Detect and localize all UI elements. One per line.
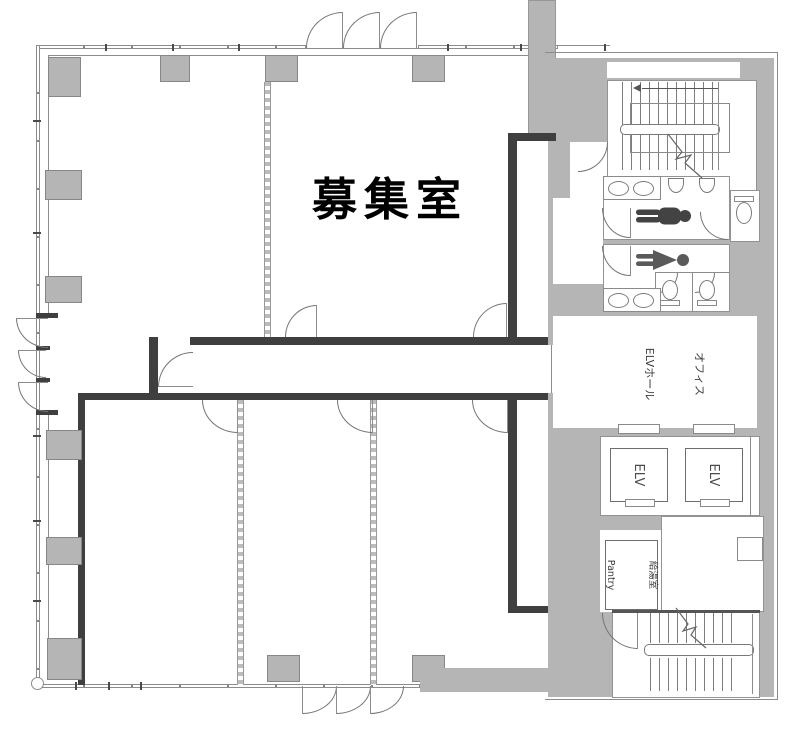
- elevator-label: ELV: [631, 455, 647, 495]
- stair-break-line: [672, 604, 712, 652]
- toilet: [736, 202, 752, 224]
- door-arc: [16, 318, 48, 348]
- core-outline: [545, 699, 778, 700]
- column: [48, 57, 81, 97]
- tick-mark: [172, 44, 174, 51]
- toilet: [699, 280, 715, 300]
- tick-mark: [75, 682, 77, 690]
- main-room-label: 募集室: [290, 163, 490, 227]
- door-leaf: [302, 686, 303, 714]
- elv-hall-label: オフィス ELVホール: [657, 326, 691, 422]
- tick-mark: [140, 682, 142, 690]
- duct-box: [737, 537, 763, 561]
- core-outline: [777, 52, 778, 700]
- elevator-door-sill: [700, 499, 730, 507]
- machine-room-line: [750, 436, 751, 516]
- door-leaf: [507, 400, 508, 433]
- elevator-door-sill: [625, 499, 655, 507]
- toilet-vestibule: [553, 198, 603, 284]
- sink: [608, 293, 629, 308]
- lease-boundary-line: [551, 345, 552, 393]
- sink: [608, 181, 629, 196]
- door-arc: [202, 400, 238, 433]
- partition-dashed: [264, 82, 271, 337]
- column: [267, 655, 300, 682]
- door-arc: [302, 686, 337, 714]
- tenant-wall: [190, 337, 548, 345]
- toilet-tank: [697, 300, 717, 306]
- toilet-tank: [660, 300, 680, 306]
- sink: [633, 293, 654, 308]
- door-leaf: [18, 382, 48, 383]
- elv-hall-label-line2: ELVホール: [641, 348, 658, 400]
- tick-mark: [604, 44, 606, 51]
- toilet: [662, 280, 678, 300]
- door-leaf: [316, 305, 317, 337]
- tick-mark: [105, 44, 107, 51]
- door-leaf: [630, 208, 631, 238]
- door-arc: [370, 686, 404, 714]
- column: [265, 55, 298, 82]
- door-arc: [18, 350, 46, 378]
- door-arc: [18, 382, 48, 412]
- door-arc: [158, 352, 193, 387]
- tick-mark: [108, 682, 110, 690]
- tick-mark: [33, 520, 41, 522]
- door-arc: [380, 12, 417, 48]
- door-leaf: [158, 386, 193, 387]
- gray-wall-band: [420, 668, 548, 692]
- pantry-label-line1: 給湯室: [645, 560, 659, 590]
- outer-wall-top: [36, 45, 306, 49]
- stair-break-line: [664, 130, 708, 182]
- stair-top-landing: [607, 62, 740, 78]
- female-figure-icon: [634, 247, 690, 273]
- corner-circle: [31, 677, 44, 690]
- stair-arrow-head-icon: [633, 84, 641, 92]
- door-leaf: [637, 613, 638, 649]
- floor-plan: ELV ELV オフィス ELVホール 給湯室 Pantry: [0, 0, 787, 737]
- gray-wall-band: [603, 240, 730, 244]
- tick-mark: [520, 44, 522, 51]
- sink: [633, 181, 654, 196]
- column: [160, 55, 190, 82]
- stair-treads: [650, 658, 738, 691]
- tick-mark: [447, 44, 449, 51]
- door-leaf: [336, 686, 337, 714]
- column: [46, 537, 82, 565]
- door-arc: [472, 400, 508, 433]
- tick-mark: [33, 600, 41, 602]
- stair-edge-line: [718, 82, 719, 170]
- door-arc: [336, 686, 371, 714]
- door-leaf: [237, 400, 238, 433]
- column: [412, 55, 445, 82]
- main-room-label-text: 募集室: [312, 163, 468, 228]
- stall-divider: [692, 272, 693, 312]
- door-arc: [343, 12, 380, 48]
- elevator-door-tab: [693, 424, 735, 434]
- partition-dashed: [237, 400, 244, 685]
- door-leaf: [370, 686, 371, 714]
- door-leaf: [16, 318, 48, 319]
- corridor-mouth: [548, 345, 557, 393]
- door-leaf: [630, 246, 631, 276]
- elv-hall-label-line1: オフィス: [691, 348, 708, 400]
- male-figure-icon: [634, 203, 692, 229]
- door-leaf: [372, 400, 373, 433]
- pantry-label: 給湯室 Pantry: [619, 547, 643, 603]
- stair-direction-arrow: [642, 88, 718, 89]
- tenant-wall: [149, 337, 158, 400]
- pantry-label-line2: Pantry: [603, 560, 617, 590]
- tick-mark: [238, 44, 240, 51]
- door-arc: [306, 12, 343, 48]
- door-arc: [337, 400, 373, 433]
- door-arc: [285, 305, 317, 337]
- door-leaf: [416, 12, 417, 48]
- tick-mark: [33, 120, 41, 122]
- tick-mark: [33, 435, 41, 437]
- outer-wall-top: [556, 45, 610, 46]
- column: [47, 638, 82, 680]
- core-outline: [545, 52, 777, 53]
- tenant-wall: [508, 606, 548, 613]
- elevator-label: ELV: [706, 455, 722, 495]
- door-leaf: [18, 350, 46, 351]
- column: [45, 276, 82, 303]
- partition-dashed: [370, 400, 377, 685]
- tick-mark: [33, 232, 41, 234]
- column: [45, 170, 82, 200]
- door-sill: [306, 48, 418, 49]
- column: [46, 430, 82, 460]
- door-arc: [473, 303, 507, 337]
- door-leaf: [506, 303, 507, 337]
- tenant-wall: [508, 400, 517, 612]
- elevator-door-tab: [618, 424, 660, 434]
- tenant-wall: [508, 133, 517, 345]
- stair-edge-line: [752, 614, 753, 694]
- tenant-wall: [508, 133, 556, 141]
